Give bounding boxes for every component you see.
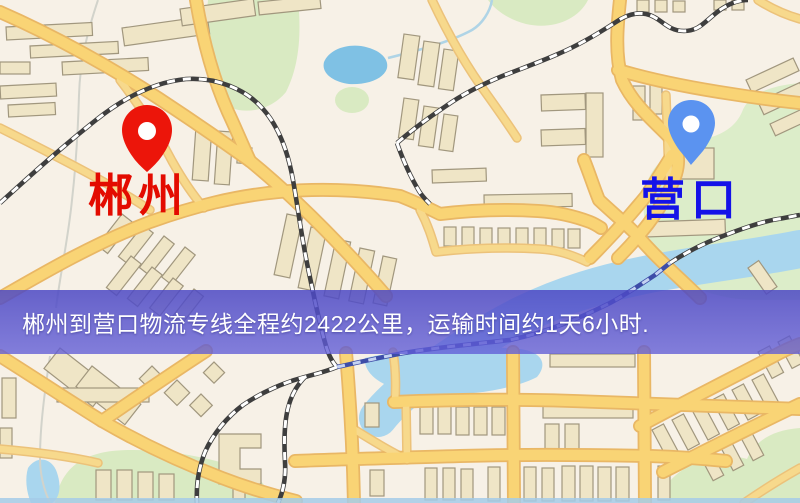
route-info-banner: 郴州到营口物流专线全程约2422公里，运输时间约1天6小时. (0, 290, 800, 354)
destination-city-label: 营口 (640, 176, 742, 226)
destination-pin-hole (683, 116, 700, 133)
origin-city-label: 郴州 (88, 172, 188, 222)
route-map-image: 郴州 营口 郴州到营口物流专线全程约2422公里，运输时间约1天6小时. (0, 0, 800, 503)
map-canvas (0, 0, 800, 503)
bottom-water-strip (0, 498, 800, 503)
origin-pin-hole (138, 122, 156, 140)
route-info-text: 郴州到营口物流专线全程约2422公里，运输时间约1天6小时. (22, 305, 649, 339)
